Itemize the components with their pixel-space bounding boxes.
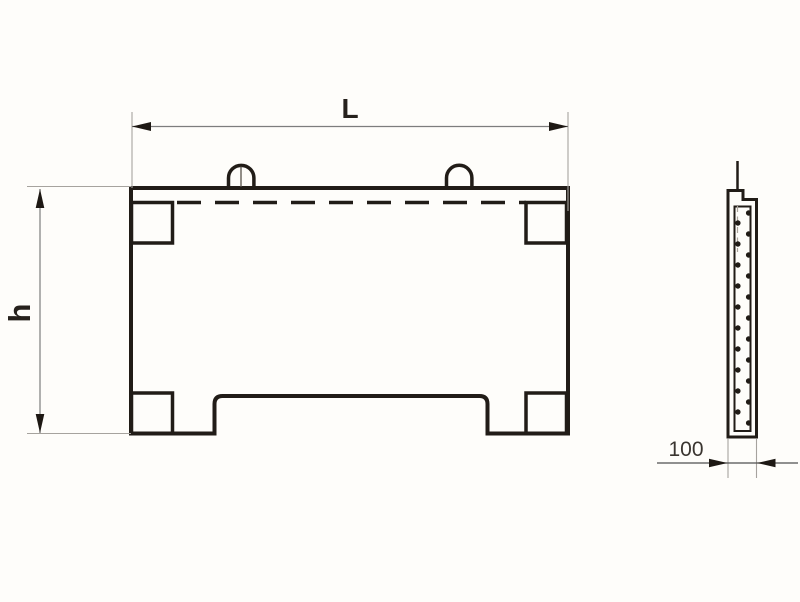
technical-drawing-canvas: L h <box>0 0 800 602</box>
rebar-dot <box>735 262 740 267</box>
embed-plate-top-left <box>132 203 173 244</box>
rebar-dot <box>746 399 751 404</box>
thickness-arrow-left <box>709 459 728 468</box>
height-arrow-bottom <box>36 414 45 433</box>
dimension-length: L <box>132 93 568 211</box>
panel-outline <box>131 188 568 434</box>
embed-plate-top-right <box>526 203 567 244</box>
thickness-arrow-right <box>757 459 776 468</box>
rebar-dot <box>735 367 740 372</box>
rebar-dot <box>735 220 740 225</box>
drawing-page: L h <box>0 0 800 602</box>
rebar-dot <box>735 346 740 351</box>
thickness-dimension-label: 100 <box>668 438 703 461</box>
length-dimension-label: L <box>341 93 358 124</box>
rebar-dot <box>735 325 740 330</box>
embed-plate-bottom-right <box>526 393 567 434</box>
rebar-dot <box>746 294 751 299</box>
height-arrow-top <box>36 189 45 208</box>
rebar-dot <box>735 388 740 393</box>
rebar-dot <box>735 409 740 414</box>
rebar-dot <box>746 252 751 257</box>
rebar-dot <box>735 283 740 288</box>
length-arrow-left <box>132 122 151 131</box>
rebar-dot <box>746 420 751 425</box>
rebar-dot <box>746 357 751 362</box>
rebar-dot <box>746 315 751 320</box>
rebar-dot <box>746 378 751 383</box>
side-view-section <box>728 161 757 437</box>
rebar-dot <box>735 304 740 309</box>
dimension-thickness: 100 <box>657 438 798 478</box>
height-dimension-label: h <box>2 304 37 323</box>
section-outline <box>728 191 757 438</box>
dimension-height: h <box>2 187 131 434</box>
front-view <box>131 165 568 433</box>
length-arrow-right <box>549 122 568 131</box>
rebar-dot <box>746 210 751 215</box>
rebar-dot <box>735 241 740 246</box>
rebar-dot <box>746 336 751 341</box>
rebar-dot <box>746 231 751 236</box>
embed-plate-bottom-left <box>132 393 173 434</box>
lifting-loop-right <box>447 165 472 188</box>
rebar-dot <box>746 273 751 278</box>
